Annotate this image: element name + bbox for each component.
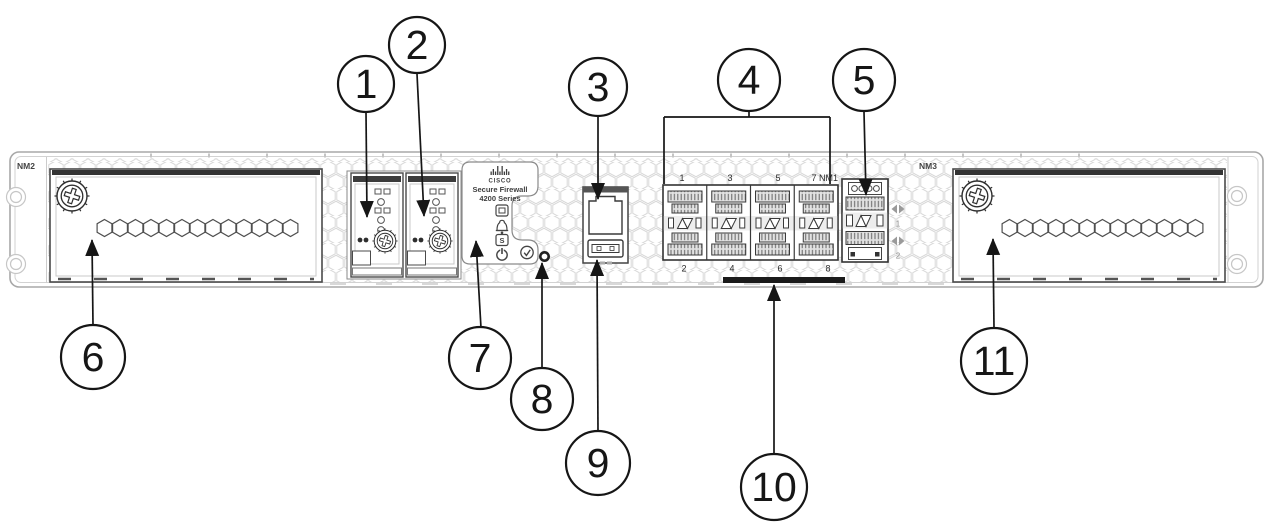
sfp-cage [799,191,833,255]
reset-pinhole [540,252,548,260]
callout-6: 6 [61,325,125,389]
callout-1: 1 [338,56,394,112]
sfp-port-block [663,185,838,260]
nm2-module-slot [50,169,322,282]
pull-out-label-tab [723,277,845,283]
ssd-bay-2 [406,173,458,277]
ssd-bay-1 [351,173,403,277]
callout-10: 10 [741,454,807,520]
svg-text:8: 8 [531,376,554,422]
leader-1 [366,112,367,217]
svg-text:6: 6 [82,334,105,380]
brand-text: CISCO [488,179,511,185]
management-port-assembly [583,187,628,265]
svg-text:7 NM1: 7 NM1 [811,173,838,183]
callout-2: 2 [389,17,445,73]
svg-text:7: 7 [469,335,492,381]
svg-text:4: 4 [729,264,734,274]
leader-11 [993,239,994,328]
svg-text:2: 2 [681,264,686,274]
svg-text:2: 2 [406,22,429,68]
callout-5: 5 [833,49,895,111]
diagram-canvas: NM2 NM3 CISCO [0,0,1275,530]
svg-text:6: 6 [777,264,782,274]
leader-9 [597,260,598,431]
svg-text:1: 1 [679,173,684,183]
callout-8: 8 [511,368,573,430]
svg-text:3: 3 [587,64,610,110]
svg-text:S: S [499,236,504,245]
sfp-cage [668,191,702,255]
product-line1: Secure Firewall [472,185,527,194]
callout-4: 4 [718,49,780,111]
callout-7: 7 [449,327,511,389]
svg-text:5: 5 [775,173,780,183]
callout-11: 11 [961,328,1027,394]
svg-text:3: 3 [727,173,732,183]
svg-text:2: 2 [896,252,901,261]
svg-text:10: 10 [751,464,797,510]
usb-port [588,240,623,257]
callout-9: 9 [566,431,630,495]
svg-text:9: 9 [587,440,610,486]
ssd-bays [347,171,461,279]
svg-text:1: 1 [896,220,901,229]
netmod-uplink-ports [842,179,888,262]
leader-6 [92,240,93,325]
nm2-label: NM2 [17,161,35,171]
svg-text:1: 1 [355,61,378,107]
svg-text:5: 5 [853,57,876,103]
nm3-label: NM3 [919,161,937,171]
callout-3: 3 [569,58,627,116]
rj45-ethernet-port [589,197,622,235]
sfp-cage [756,191,790,255]
svg-text:8: 8 [825,264,830,274]
svg-text:4: 4 [738,57,761,103]
front-panel-diagram: NM2 NM3 CISCO [0,0,1275,530]
product-line2: 4200 Series [479,194,520,203]
sfp-cage [712,191,746,255]
svg-text:11: 11 [973,338,1016,384]
